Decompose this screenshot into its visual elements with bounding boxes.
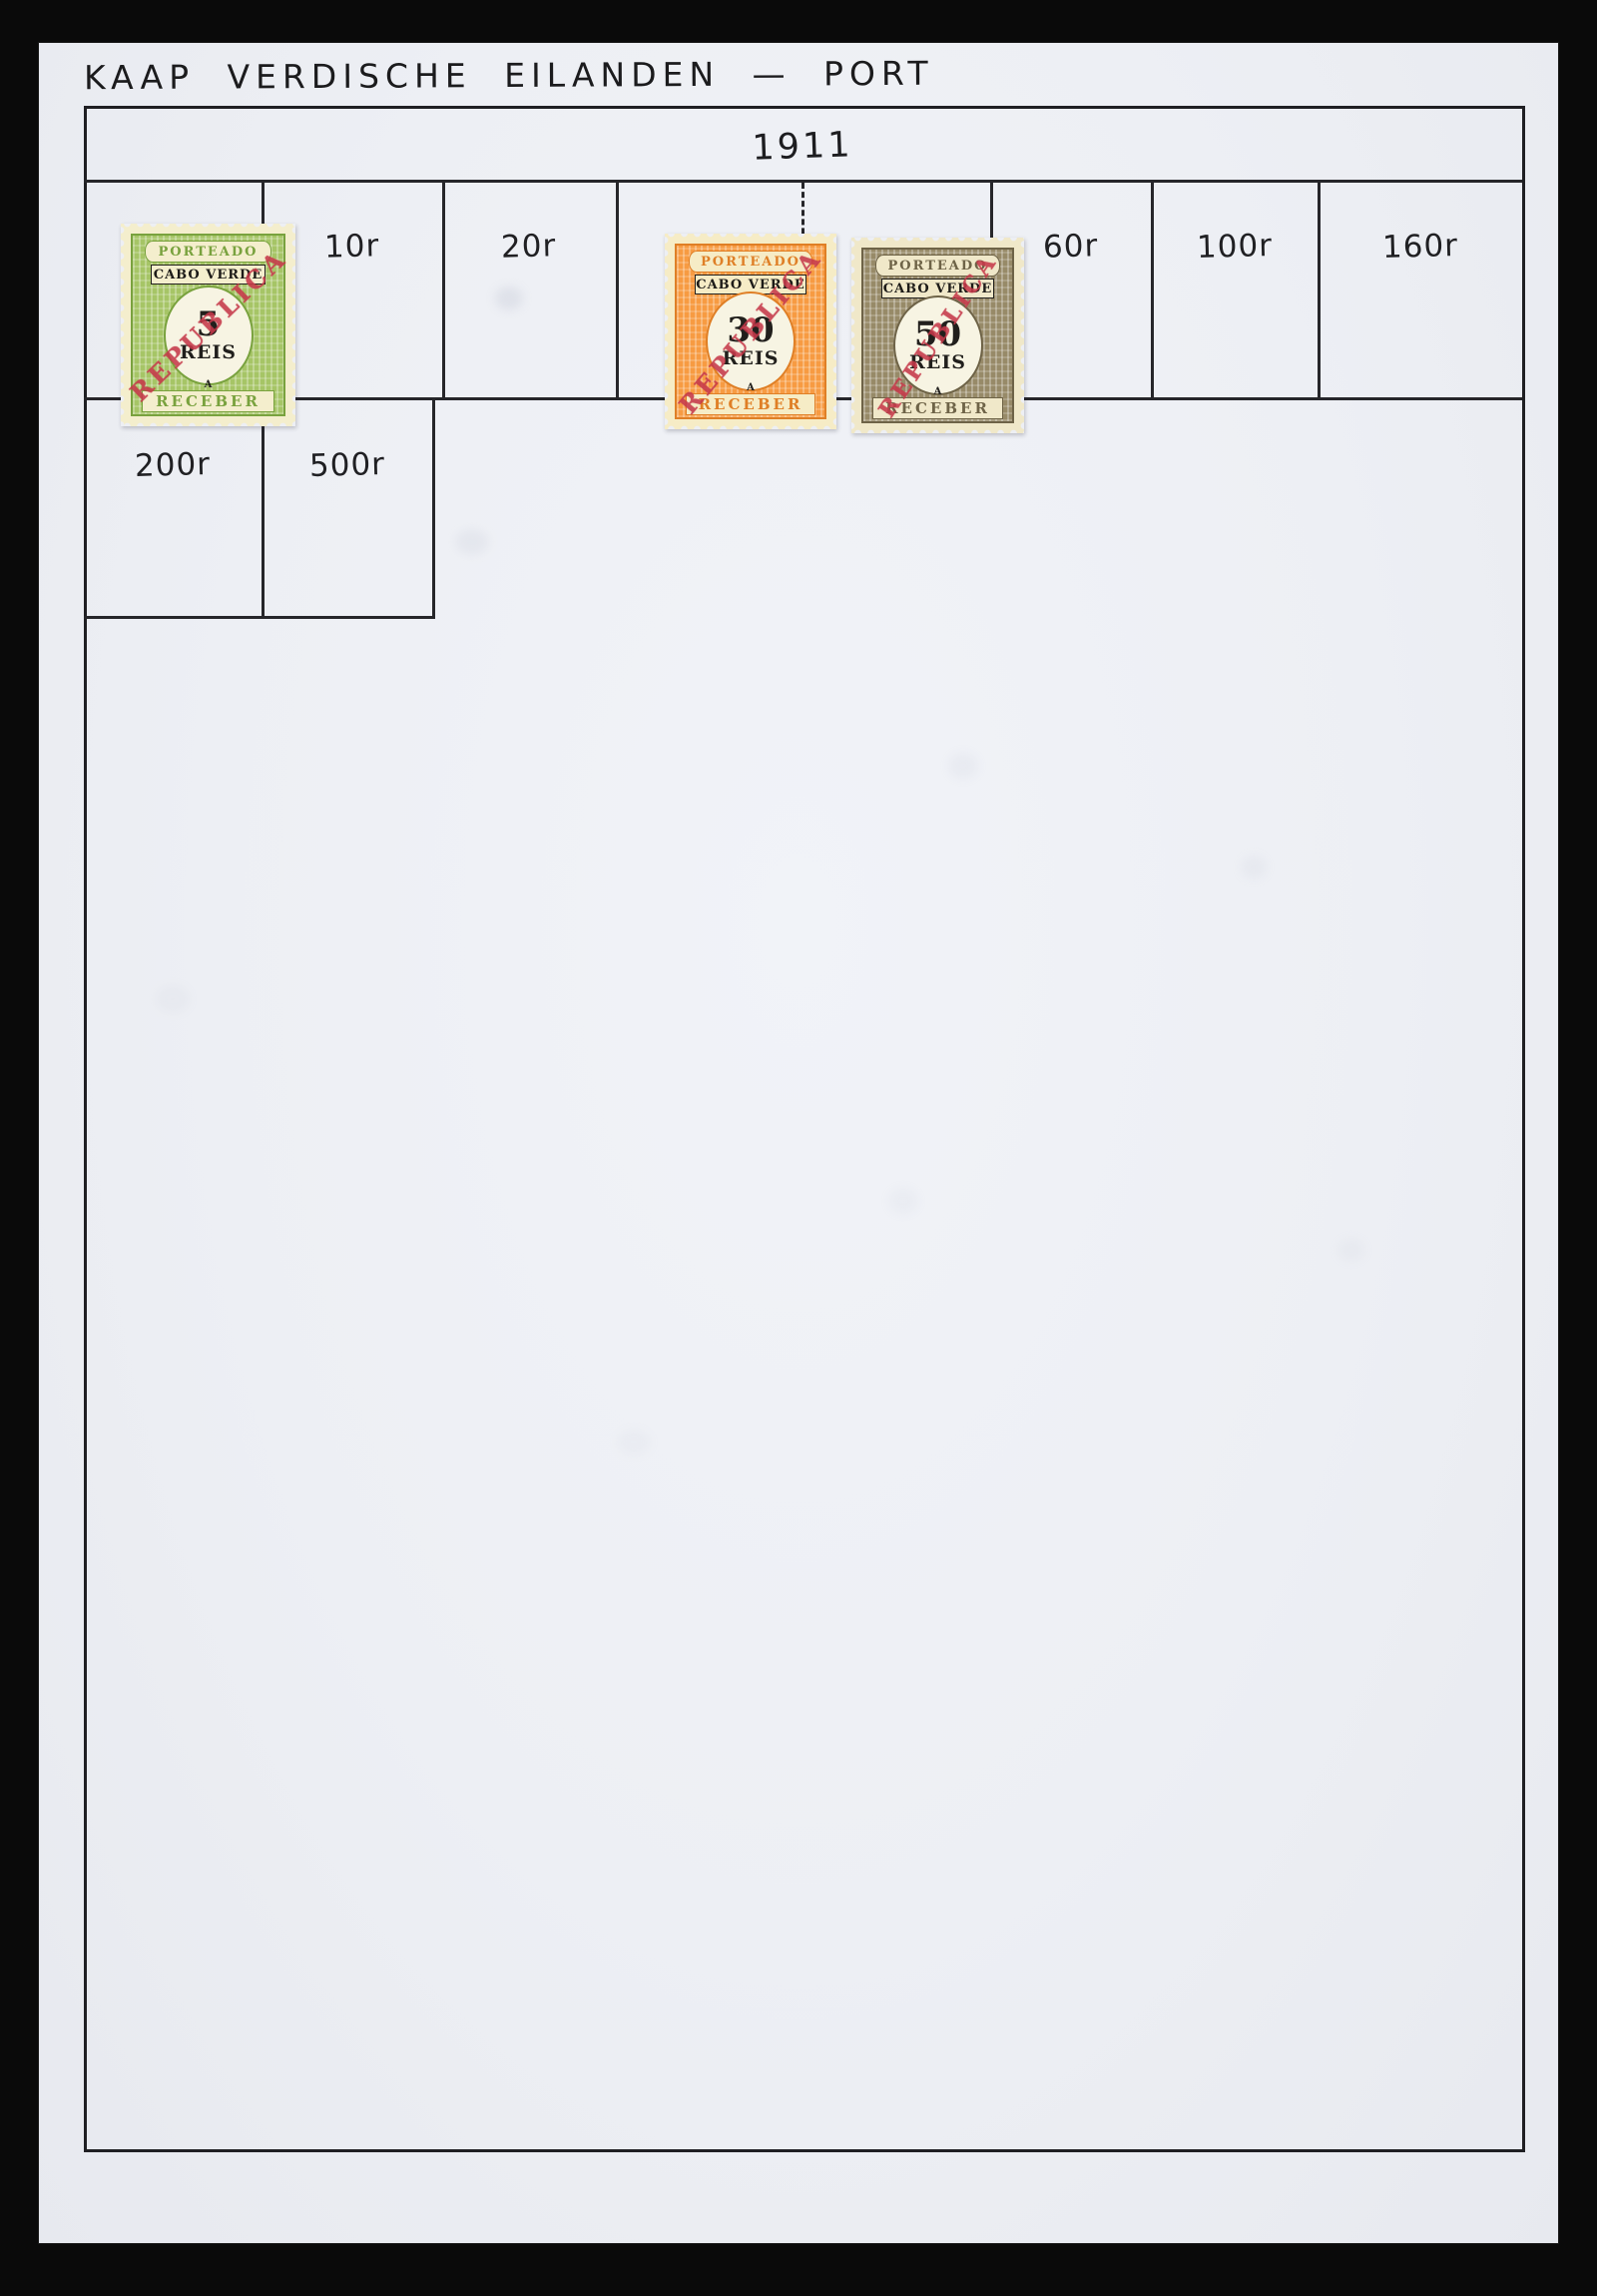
grid-line-horizontal (84, 616, 435, 619)
year-heading: 1911 (752, 125, 853, 169)
stamp-30-reis-orange: PORTEADO CABO VERDE 30 REIS A RECEBER RE… (665, 234, 836, 429)
price-label-500r: 500r (262, 397, 432, 616)
stamp-porteado-arc: PORTEADO (145, 241, 271, 263)
page-title: KAAP VERDISCHE EILANDEN — PORT (84, 54, 934, 97)
stamp-letter: A (934, 386, 942, 397)
stamp-letter: A (747, 382, 755, 393)
stamp-5-reis-green: PORTEADO CABO VERDE 5 REIS A RECEBER REP… (121, 224, 295, 426)
price-label-20r: 20r (442, 183, 616, 397)
price-label-160r: 160r (1318, 183, 1522, 397)
stamp-letter: A (205, 379, 213, 390)
price-label-200r: 200r (84, 397, 262, 616)
stamp-receber-tablet: RECEBER (142, 390, 274, 412)
album-page: KAAP VERDISCHE EILANDEN — PORT 1911 10r … (38, 42, 1559, 2244)
stamp-50-reis-brown: PORTEADO CABO VERDE 50 REIS A RECEBER RE… (851, 238, 1024, 433)
grid-line-vertical (432, 397, 435, 616)
grid-line-vertical (616, 183, 619, 397)
price-label-100r: 100r (1151, 183, 1318, 397)
